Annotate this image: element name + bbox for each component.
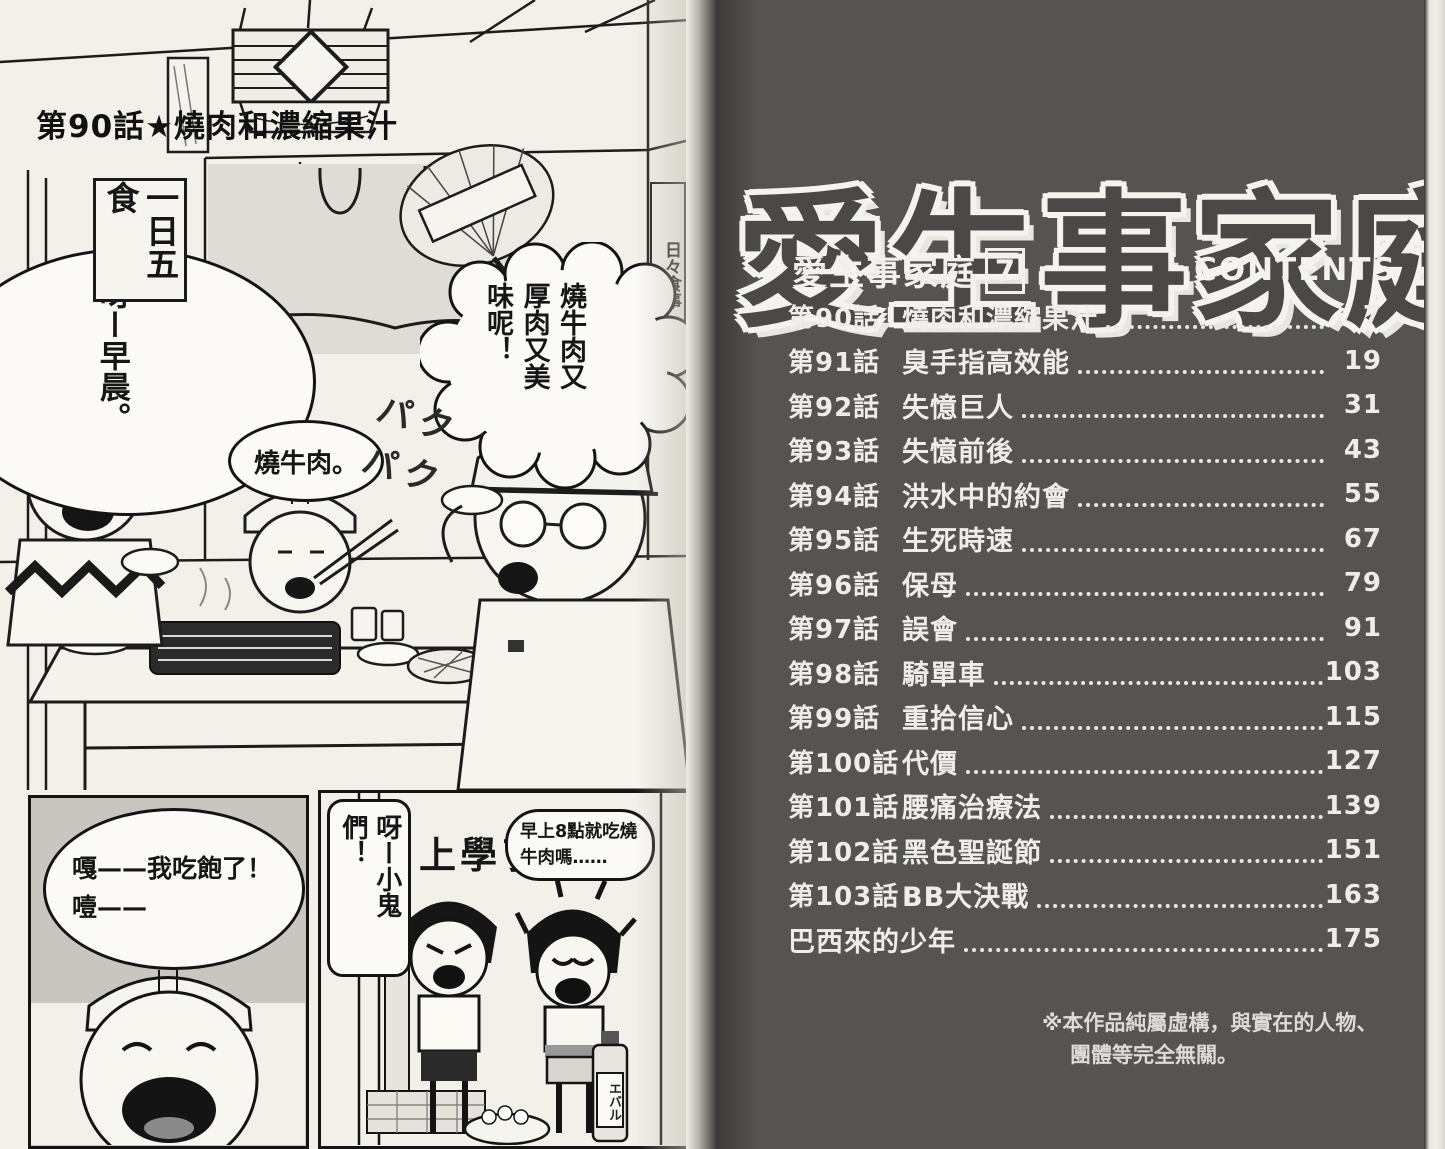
contents-heading: CONTENTS [1194,252,1397,288]
speech-text-tasty: 燒牛肉又厚肉又美味呢！ [458,282,588,414]
toc-row: 第100話 代價 127 [788,739,1382,784]
speech-bubble-heykids: 呀ー小鬼們！ [327,799,411,977]
toc-page-number: 43 [1326,435,1382,465]
toc-page-number: 175 [1325,924,1382,954]
toc-dot-leader [1050,785,1323,819]
speech-bubble-morning8: 早上8點就吃燒牛肉嗎…… [505,809,655,881]
series-label: 愛生事家庭 [792,245,977,296]
toc-dot-leader [1106,295,1324,329]
speech-bubble-yakiniku: 燒牛肉。 [228,420,384,502]
toc-dot-leader [994,651,1323,685]
toc-dot-leader [1078,340,1324,374]
toc-page-number: 91 [1326,613,1382,643]
toc-dot-leader [1022,696,1323,730]
toc-chapter-title: 騎單車 [902,653,986,692]
toc-chapter-title: 失憶前後 [902,430,1014,469]
toc-row: 第92話 失憶巨人 31 [788,383,1382,428]
toc-row: 第94話 洪水中的約會 55 [788,472,1382,517]
toc-page-number: 127 [1325,746,1382,776]
toc-chapter-number: 第99話 [788,698,902,735]
toc-chapter-title: 重拾信心 [902,697,1014,736]
toc-row: 第95話 生死時速 67 [788,517,1382,562]
toc-page-number: 79 [1326,568,1382,598]
toc-chapter-number: 第98話 [788,654,902,691]
toc-chapter-title: 黑色聖誕節 [902,831,1042,870]
toc-dot-leader [1022,429,1324,463]
toc-chapter-number: 第95話 [788,520,902,557]
toc-page-number: 55 [1326,479,1382,509]
toc-chapter-number: 第97話 [788,609,902,646]
toc-chapter-title: 腰痛治療法 [902,786,1042,825]
book-gutter [686,0,716,1149]
contents-page: 愛生事家庭 愛生事家庭 7 CONTENTS 第90話 燒肉和濃縮果汁 7 第9… [716,0,1424,1149]
toc-chapter-title: 巴西來的少年 [788,920,956,959]
toc-chapter-title: 洪水中的約會 [902,475,1070,514]
toc-chapter-title: 臭手指高效能 [902,341,1070,380]
toc-row: 第102話 黑色聖誕節 151 [788,828,1382,873]
speech-bubble-full: 嘎——我吃飽了！噎—— [43,808,305,970]
toc-chapter-number: 第92話 [788,387,902,424]
series-volume-row: 愛生事家庭 7 [792,245,1025,296]
toc-row: 巴西來的少年 175 [788,917,1382,962]
toc-chapter-number: 第91話 [788,342,902,379]
toc-row: 第93話 失憶前後 43 [788,428,1382,473]
speech-text-morning: 呀ー早晨。 [92,278,131,493]
chapter-title: 第90話★燒肉和濃縮果汁 [36,101,398,146]
panel-off-to-school: 呀ー小鬼們！ 上學了！ 早上8點就吃燒牛肉嗎…… エバル [318,790,689,1149]
toc-dot-leader [1022,518,1324,552]
toc-row: 第90話 燒肉和濃縮果汁 7 [788,294,1382,339]
toc-row: 第91話 臭手指高效能 19 [788,339,1382,384]
comic-page: 呀ー早晨。 一日五食 日々食事 燒牛肉。 燒牛肉又厚肉又美味呢！ パクパク 第9… [0,0,690,1149]
wall-plaque: 一日五食 [93,178,187,302]
toc-dot-leader [1022,384,1324,418]
toc-row: 第96話 保母 79 [788,561,1382,606]
toc-chapter-title: BB大決戰 [902,875,1029,914]
toc-chapter-title: 保母 [902,564,958,603]
disclaimer-line-2: 團體等完全無關。 [1042,1040,1377,1072]
toc-chapter-number: 第90話 [788,298,902,335]
toc-chapter-number: 第100話 [788,743,902,780]
panel-full-belly: 嘎——我吃飽了！噎—— [28,795,309,1149]
toc-page-number: 103 [1325,657,1382,687]
binding-shadow-left [636,0,686,1149]
toc-chapter-title: 生死時速 [902,519,1014,558]
toc-dot-leader [1037,874,1323,908]
toc-chapter-number: 第103話 [788,876,902,913]
toc-row: 第97話 誤會 91 [788,606,1382,651]
toc-chapter-number: 第102話 [788,832,902,869]
toc-page-number: 163 [1325,880,1382,910]
toc-page-number: 7 [1326,301,1382,331]
toc-chapter-number: 第101話 [788,787,902,824]
bottle-label: エバル [597,1075,623,1127]
toc-dot-leader [964,918,1323,952]
panel-dining-scene: 呀ー早晨。 一日五食 日々食事 燒牛肉。 燒牛肉又厚肉又美味呢！ パクパク 第9… [0,0,690,790]
toc-page-number: 115 [1325,702,1382,732]
toc-page-number: 151 [1325,835,1382,865]
toc-page-number: 31 [1326,390,1382,420]
toc-chapter-number: 第93話 [788,431,902,468]
toc-page-number: 67 [1326,524,1382,554]
toc-page-number: 139 [1325,791,1382,821]
book-spread: 呀ー早晨。 一日五食 日々食事 燒牛肉。 燒牛肉又厚肉又美味呢！ パクパク 第9… [0,0,1445,1149]
disclaimer-note: ※本作品純屬虛構，與實在的人物、 團體等完全無關。 [1042,1008,1377,1071]
toc-row: 第98話 騎單車 103 [788,650,1382,695]
page-edge [1424,0,1445,1149]
toc-page-number: 19 [1326,346,1382,376]
toc-chapter-title: 失憶巨人 [902,386,1014,425]
toc-chapter-title: 代價 [902,742,958,781]
table-of-contents: 第90話 燒肉和濃縮果汁 7 第91話 臭手指高效能 19 第92話 失憶巨人 … [788,294,1382,962]
toc-row: 第103話 BB大決戰 163 [788,873,1382,918]
toc-dot-leader [966,740,1323,774]
volume-number-box: 7 [985,248,1025,294]
disclaimer-line-1: ※本作品純屬虛構，與實在的人物、 [1042,1008,1377,1040]
toc-chapter-title: 誤會 [902,608,958,647]
toc-dot-leader [966,607,1324,641]
toc-row: 第99話 重拾信心 115 [788,695,1382,740]
toc-chapter-number: 第94話 [788,476,902,513]
toc-row: 第101話 腰痛治療法 139 [788,784,1382,829]
toc-dot-leader [1050,829,1323,863]
speech-text-heykids: 呀ー小鬼們！ [335,814,403,964]
toc-chapter-number: 第96話 [788,565,902,602]
toc-dot-leader [1078,473,1324,507]
toc-chapter-title: 燒肉和濃縮果汁 [902,297,1098,336]
toc-dot-leader [966,562,1324,596]
